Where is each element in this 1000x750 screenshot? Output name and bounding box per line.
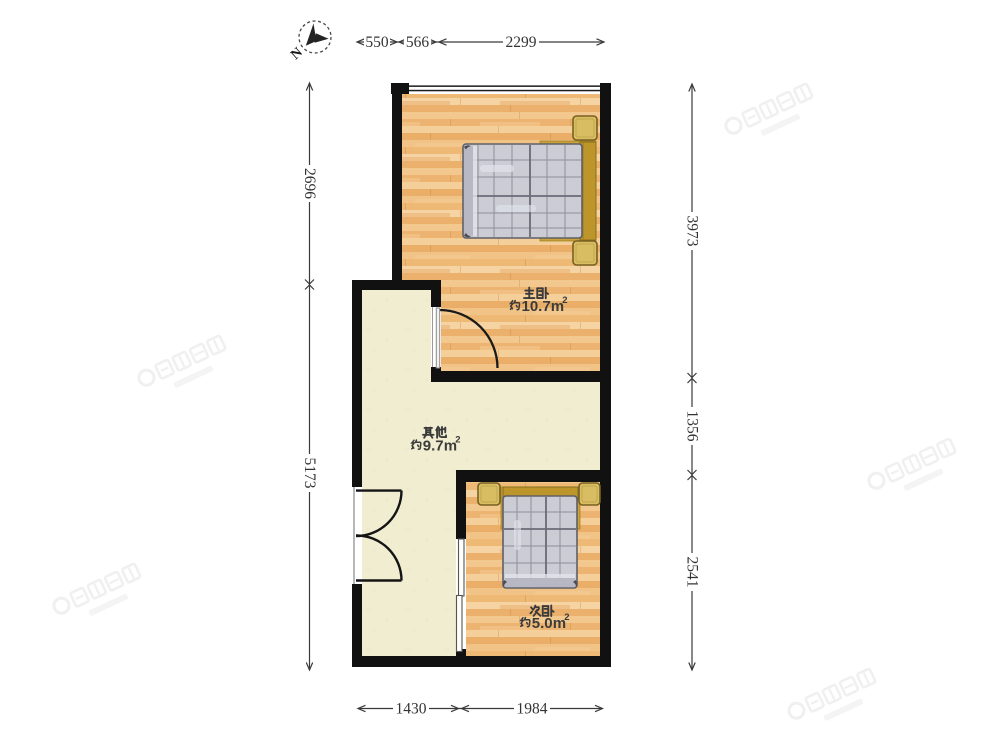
svg-text:5173: 5173 — [301, 458, 318, 489]
svg-text:N: N — [288, 45, 306, 63]
svg-text:5.0: 5.0 — [532, 615, 553, 632]
svg-text:9.7: 9.7 — [423, 438, 444, 455]
svg-text:2: 2 — [564, 612, 569, 623]
svg-text:1430: 1430 — [396, 701, 427, 718]
svg-text:2: 2 — [562, 295, 567, 306]
svg-text:2696: 2696 — [301, 168, 318, 199]
svg-text:10.7: 10.7 — [522, 298, 551, 315]
svg-text:3973: 3973 — [684, 216, 701, 247]
svg-text:566: 566 — [406, 34, 430, 51]
svg-text:2299: 2299 — [506, 34, 537, 51]
svg-text:1984: 1984 — [517, 701, 548, 718]
svg-text:1356: 1356 — [684, 411, 701, 442]
svg-text:2: 2 — [455, 434, 460, 445]
svg-text:550: 550 — [365, 34, 389, 51]
svg-text:2541: 2541 — [684, 557, 701, 588]
